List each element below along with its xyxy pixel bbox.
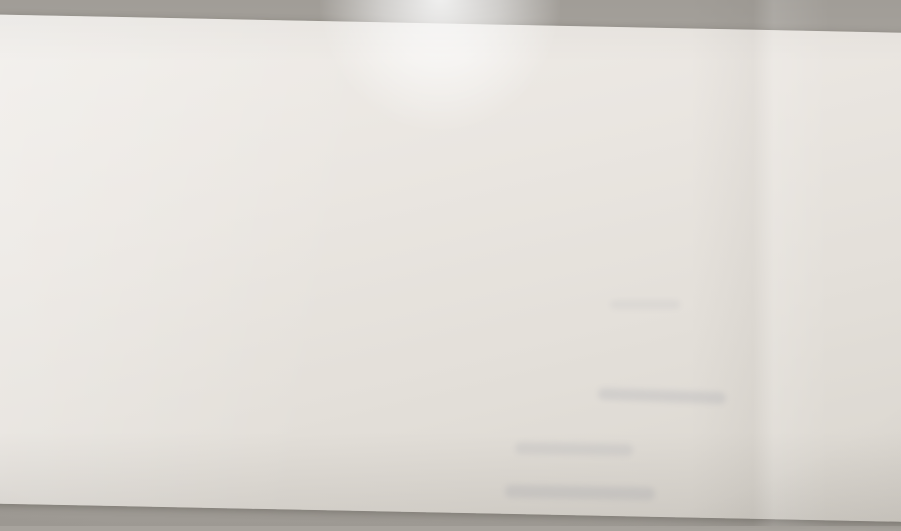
light-glare (320, 0, 560, 130)
bleed-smudge-3 (505, 485, 655, 501)
photo-of-floorplan: { "floorplan": { "total_area": "64,50", … (0, 0, 901, 526)
paper-crease (690, 0, 830, 526)
bleed-smudge-4 (610, 300, 680, 309)
photo-background: 64,50 15,86 1,55 3,60 16,41 7,75 18,13 4… (0, 0, 901, 526)
bleed-smudge-2 (515, 442, 633, 456)
